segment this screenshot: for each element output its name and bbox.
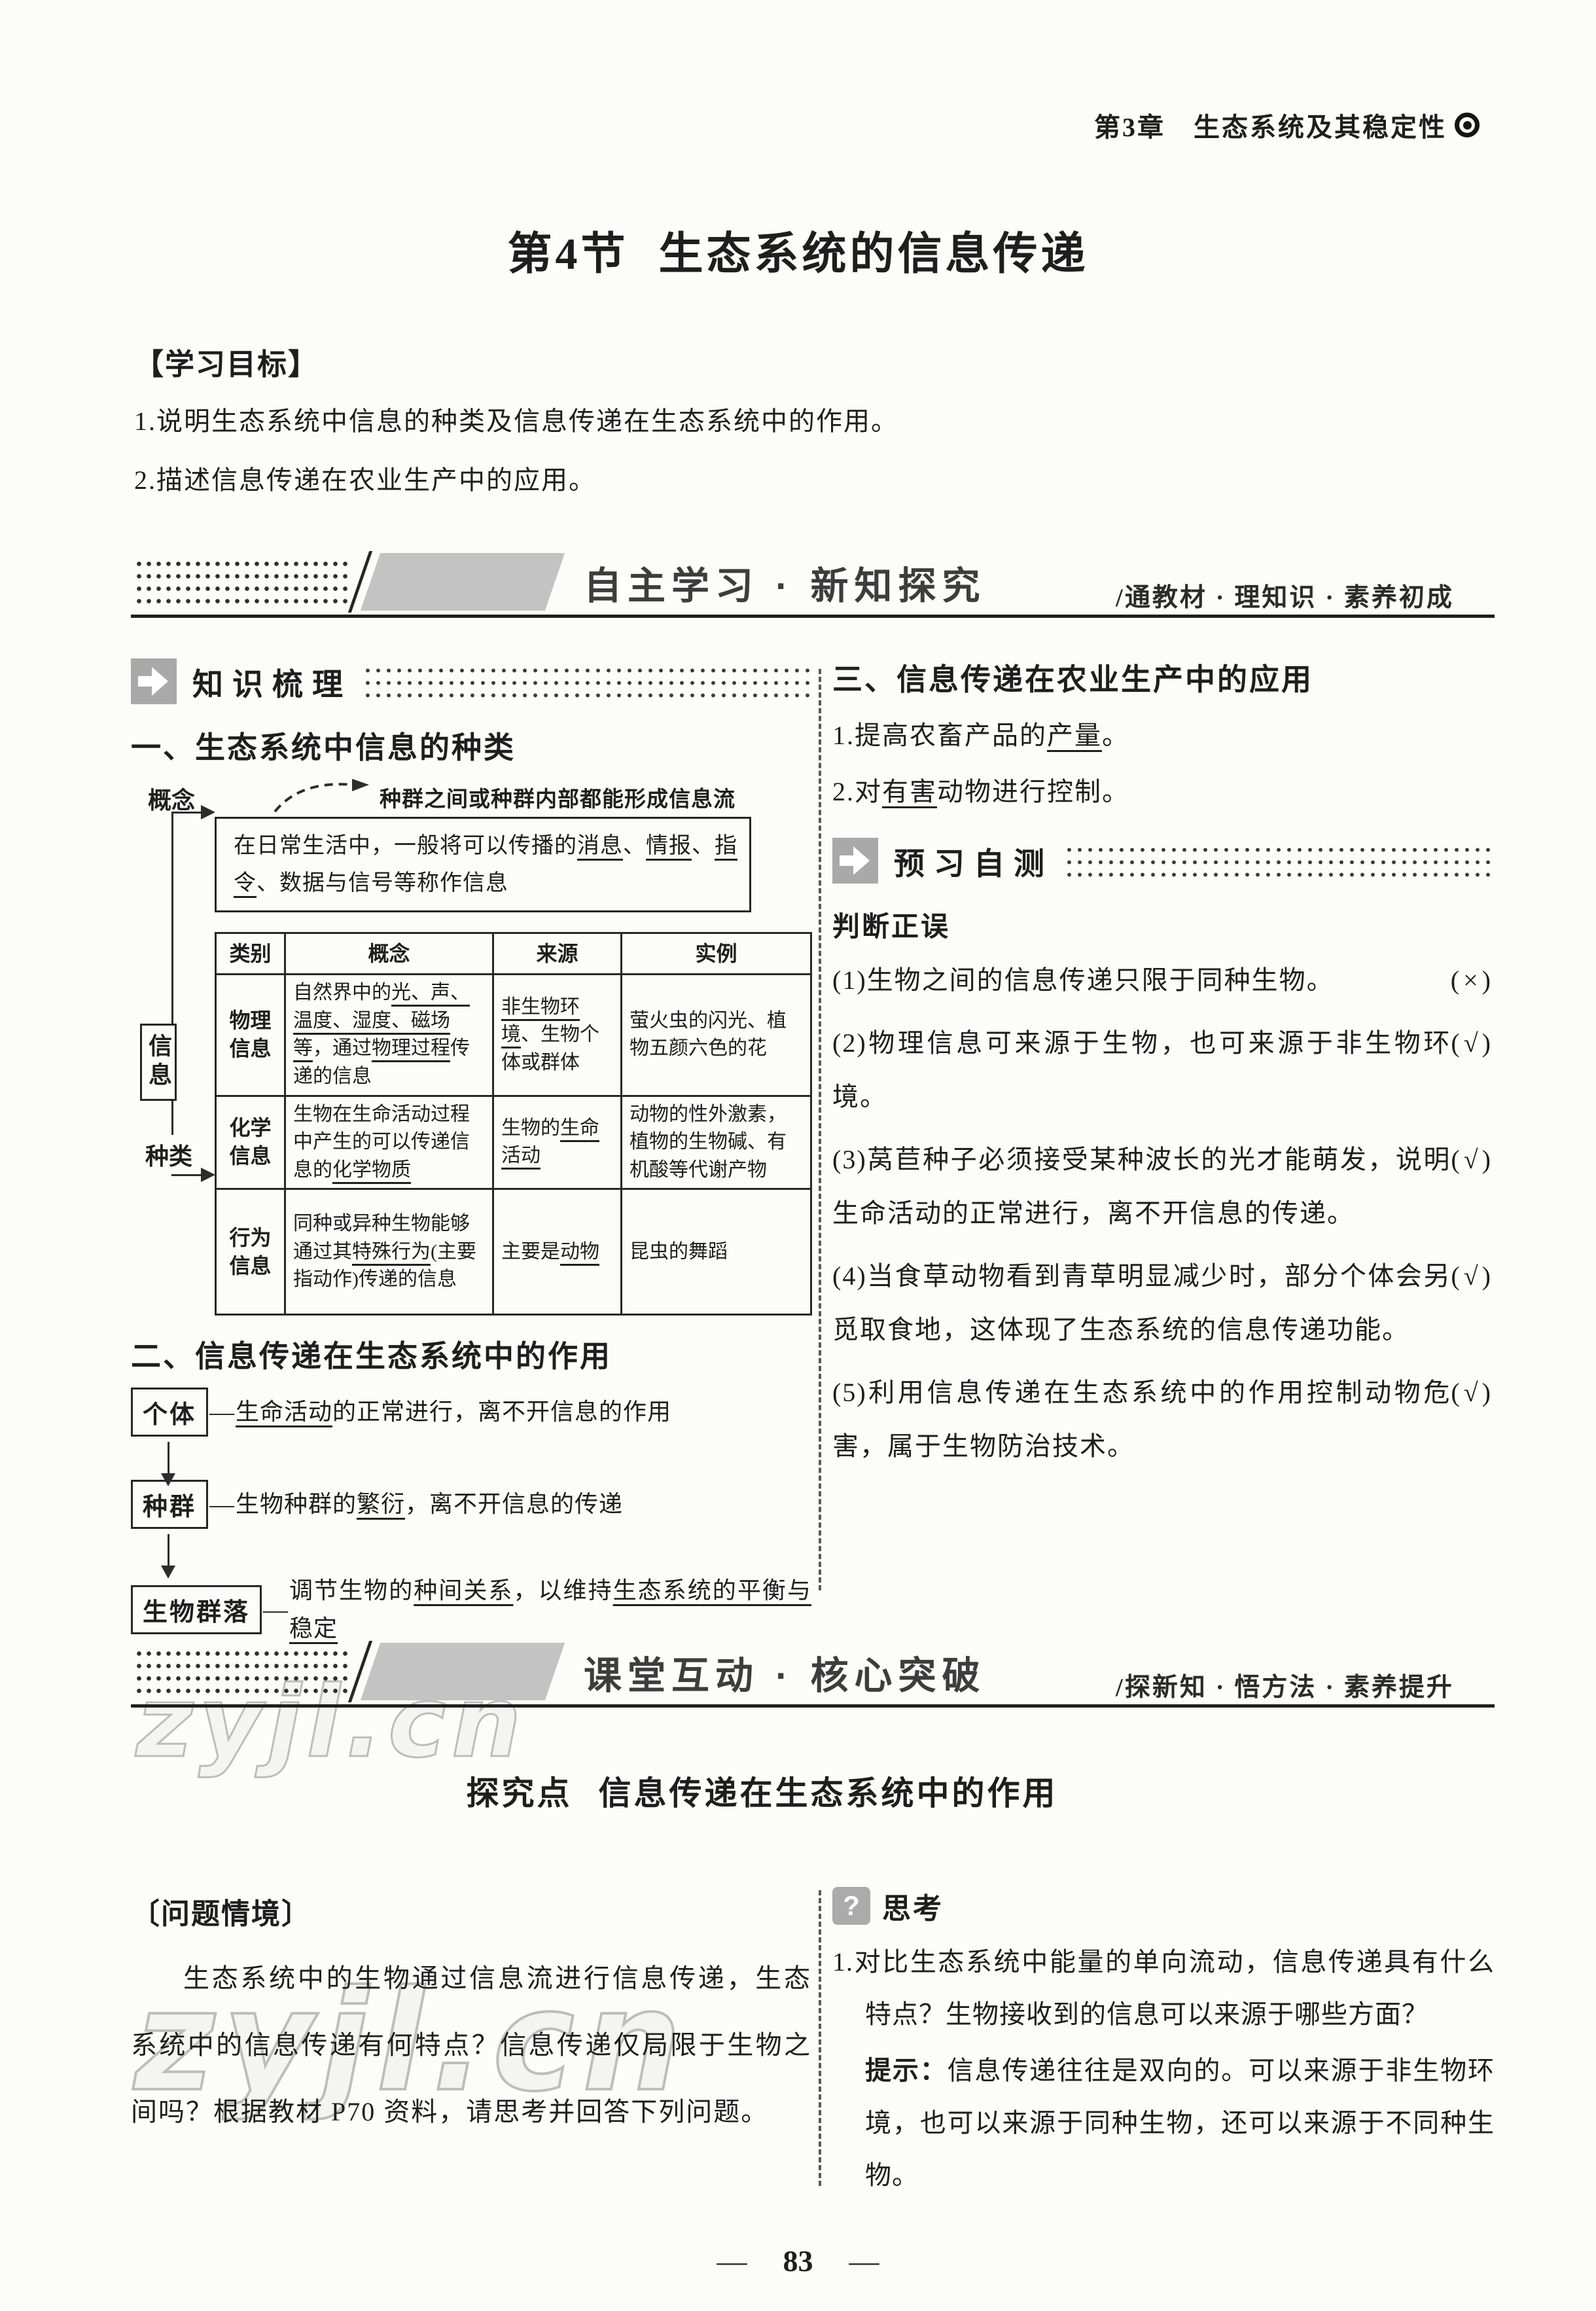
cell-concept: 生物在生命活动过程中产生的可以传递信息的化学物质 [285, 1096, 493, 1189]
think-body: 1.对比生态系统中能量的单向流动，信息传递具有什么特点？生物接收到的信息可以来源… [832, 1936, 1495, 2202]
column-header: 来源 [493, 933, 622, 975]
banner-subtitle: /通教材 · 理知识 · 素养初成 [1116, 577, 1454, 614]
dashed-arrow-icon [271, 778, 370, 814]
judgment-item: (√) (5)利用信息传递在生态系统中的作用控制动物危害，属于生物防治技术。 [832, 1366, 1495, 1473]
section-heading-1: 一、生态系统中信息的种类 [131, 724, 811, 767]
branch-line [171, 812, 173, 1175]
chapter-heading: 第3章 生态系统及其稳定性 [1094, 106, 1480, 144]
hint-paragraph: 提示：信息传递往往是双向的。可以来源于非生物环境，也可以来源于同种生物，还可以来… [865, 2045, 1495, 2202]
application-item: 1.提高农畜产品的产量。 [832, 716, 1495, 755]
banner-classroom: 课堂互动 · 核心突破 /探新知 · 悟方法 · 素养提升 [0, 1639, 1596, 1708]
banner-parallelogram [361, 1643, 565, 1700]
explore-point-heading: 探究点信息传递在生态系统中的作用 [0, 1767, 1560, 1814]
info-role-flowchart: 个体 — 生命活动的正常进行，离不开信息的作用 种群 — 生物种群的繁衍，离不开… [131, 1388, 811, 1647]
banner-parallelogram [361, 553, 565, 611]
flow-desc: 生命活动的正常进行，离不开信息的作用 [236, 1393, 671, 1431]
column-header: 实例 [622, 933, 811, 975]
column-header: 概念 [285, 933, 493, 975]
judgment-text: (3)莴苣种子必须接受某种波长的光才能萌发，说明生命活动的正常进行，离不开信息的… [832, 1145, 1451, 1228]
judgment-answer: (√) [1451, 1016, 1495, 1070]
flow-desc: 生物种群的繁衍，离不开信息的传递 [236, 1486, 623, 1524]
hint-text: 信息传递往往是双向的。可以来源于非生物环境，也可以来源于同种生物，还可以来源于不… [865, 2056, 1495, 2190]
right-column: 三、信息传递在农业生产中的应用 1.提高农畜产品的产量。 2.对有害动物进行控制… [832, 656, 1495, 1473]
page-number-dash: — [717, 2244, 747, 2278]
table-row: 化学信息 生物在生命活动过程中产生的可以传递信息的化学物质 生物的生命活动 动物… [216, 1096, 811, 1189]
column-divider [819, 1890, 821, 2186]
dotted-fill [363, 662, 811, 700]
banner-underline [131, 1704, 1495, 1708]
branch-arrow-types [171, 1174, 202, 1176]
cell-type: 行为信息 [216, 1189, 285, 1315]
concept-box: 在日常生活中，一般将可以传播的消息、情报、指令、数据与信号等称作信息 [215, 817, 751, 912]
cell-example: 昆虫的舞蹈 [622, 1189, 811, 1315]
table-header-row: 类别 概念 来源 实例 [216, 933, 811, 975]
knowledge-tag-label: 知识梳理 [192, 659, 352, 704]
column-divider [819, 669, 821, 1590]
table-row: 物理信息 自然界中的光、声、温度、湿度、磁场等，通过物理过程传递的信息 非生物环… [216, 975, 811, 1096]
dotted-fill [1064, 842, 1495, 880]
banner-self-study: 自主学习 · 新知探究 /通教材 · 理知识 · 素养初成 [0, 550, 1596, 618]
goal-item: 2.描述信息传递在农业生产中的应用。 [134, 460, 1430, 501]
chapter-title: 第3章 生态系统及其稳定性 [1094, 106, 1447, 144]
info-node-box: 信息 [140, 1024, 177, 1101]
chapter-bullet-dot [1463, 121, 1472, 130]
judgment-text: (2)物理信息可来源于生物，也可来源于非生物环境。 [832, 1028, 1451, 1111]
judgment-answer: (√) [1451, 1366, 1495, 1420]
think-question: 1.对比生态系统中能量的单向流动，信息传递具有什么特点？生物接收到的信息可以来源… [865, 1936, 1495, 2041]
arrow-right-icon [131, 658, 177, 704]
judgment-item: (√) (4)当食草动物看到青草明显减少时，部分个体会另觅取食地，这体现了生态系… [832, 1249, 1495, 1357]
explore-point-title: 信息传递在生态系统中的作用 [599, 1775, 1058, 1812]
cell-source: 非生物环境、生物个体或群体 [493, 975, 622, 1096]
think-section: ? 思考 1.对比生态系统中能量的单向流动，信息传递具有什么特点？生物接收到的信… [832, 1885, 1495, 2202]
arrow-right-icon [832, 838, 878, 884]
flow-connector-dash: — [263, 1596, 288, 1624]
flow-row-community: 生物群落 — 调节生物的种间关系，以维持生态系统的平衡与稳定 [131, 1572, 811, 1647]
flow-box-population: 种群 [131, 1480, 208, 1529]
judgment-item: (√) (3)莴苣种子必须接受某种波长的光才能萌发，说明生命活动的正常进行，离不… [832, 1133, 1495, 1240]
cell-source: 主要是动物 [493, 1189, 622, 1315]
pretest-tag: 预习自测 [832, 835, 1495, 886]
think-header: ? 思考 [832, 1885, 1495, 1927]
hint-label: 提示： [865, 2056, 948, 2085]
flow-row-individual: 个体 — 生命活动的正常进行，离不开信息的作用 [131, 1388, 811, 1437]
judgment-text: (4)当食草动物看到青草明显减少时，部分个体会另觅取食地，这体现了生态系统的信息… [832, 1261, 1451, 1344]
flow-box-individual: 个体 [131, 1388, 208, 1437]
judgment-text: (5)利用信息传递在生态系统中的作用控制动物危害，属于生物防治技术。 [832, 1378, 1451, 1461]
cell-type: 化学信息 [216, 1096, 285, 1189]
situation-paragraph: 生态系统中的生物通过信息流进行信息传递，生态系统中的信息传递有何特点？信息传递仅… [131, 1945, 811, 2145]
learning-goals-heading: 【学习目标】 [134, 340, 1430, 383]
flow-box-community: 生物群落 [131, 1585, 262, 1634]
page-number-dash: — [849, 2244, 879, 2278]
judgment-answer: (√) [1451, 1249, 1495, 1303]
learning-goals: 【学习目标】 1.说明生态系统中信息的种类及信息传递在生态系统中的作用。 2.描… [134, 340, 1430, 501]
cell-concept: 同种或异种生物能够通过其特殊行为(主要指动作)传递的信息 [285, 1189, 493, 1315]
think-label: 思考 [882, 1885, 944, 1927]
page-title-number: 第4节 [507, 229, 628, 279]
down-arrow-icon [168, 1534, 169, 1567]
page-title-text: 生态系统的信息传递 [659, 229, 1089, 279]
page-number: —83— [0, 2244, 1596, 2278]
problem-situation: 〔问题情境〕 生态系统中的生物通过信息流进行信息传递，生态系统中的信息传递有何特… [131, 1890, 811, 2145]
banner-title: 课堂互动 · 核心突破 [584, 1645, 986, 1700]
banner-dots-decoration [134, 1647, 350, 1698]
table-row: 行为信息 同种或异种生物能够通过其特殊行为(主要指动作)传递的信息 主要是动物 … [216, 1189, 811, 1315]
pretest-tag-label: 预习自测 [894, 838, 1054, 884]
down-arrow-icon [168, 1442, 169, 1475]
info-types-table: 类别 概念 来源 实例 物理信息 自然界中的光、声、温度、湿度、磁场等，通过物理… [215, 932, 812, 1316]
cell-type: 物理信息 [216, 975, 285, 1096]
judgment-text: (1)生物之间的信息传递只限于同种生物。 [832, 965, 1334, 995]
flow-connector-dash: — [209, 1490, 234, 1519]
judgment-item: (×) (1)生物之间的信息传递只限于同种生物。 [832, 954, 1495, 1007]
textbook-page: 第3章 生态系统及其稳定性 第4节生态系统的信息传递 【学习目标】 1.说明生态… [0, 0, 1596, 2311]
judgment-answer: (√) [1451, 1133, 1495, 1187]
banner-subtitle: /探新知 · 悟方法 · 素养提升 [1116, 1667, 1454, 1704]
question-icon: ? [832, 1887, 870, 1925]
banner-underline [131, 615, 1495, 618]
knowledge-tag: 知识梳理 [131, 656, 811, 707]
judge-subheading: 判断正误 [832, 905, 1495, 944]
judgment-answer: (×) [1451, 954, 1495, 1007]
flow-row-population: 种群 — 生物种群的繁衍，离不开信息的传递 [131, 1480, 811, 1529]
page-title: 第4节生态系统的信息传递 [0, 217, 1596, 282]
section-heading-2: 二、信息传递在生态系统中的作用 [131, 1333, 811, 1376]
banner-title: 自主学习 · 新知探究 [584, 555, 986, 610]
info-annotation: 种群之间或种群内部都能形成信息流 [271, 776, 811, 814]
concept-branch-label: 概念 [148, 781, 195, 815]
explore-point-label: 探究点 [467, 1775, 573, 1812]
goal-item: 1.说明生态系统中信息的种类及信息传递在生态系统中的作用。 [134, 401, 1430, 442]
cell-source: 生物的生命活动 [493, 1096, 622, 1189]
flow-connector-dash: — [209, 1398, 234, 1427]
information-concept-map: 种群之间或种群内部都能形成信息流 概念 在日常生活中，一般将可以传播的消息、情报… [131, 776, 811, 1316]
chapter-bullet-icon [1455, 113, 1480, 137]
page-number-value: 83 [783, 2244, 813, 2278]
flow-desc: 调节生物的种间关系，以维持生态系统的平衡与稳定 [289, 1572, 811, 1647]
column-header: 类别 [216, 933, 285, 975]
type-branch-label: 种类 [145, 1135, 192, 1174]
section-heading-3: 三、信息传递在农业生产中的应用 [832, 656, 1495, 699]
left-column: 知识梳理 一、生态系统中信息的种类 种群之间或种群内部都能形成信息流 概念 在日… [131, 656, 811, 1648]
cell-example: 动物的性外激素，植物的生物碱、有机酸等代谢产物 [622, 1096, 811, 1189]
cell-example: 萤火虫的闪光、植物五颜六色的花 [622, 975, 811, 1096]
situation-label: 〔问题情境〕 [131, 1890, 811, 1932]
cell-concept: 自然界中的光、声、温度、湿度、磁场等，通过物理过程传递的信息 [285, 975, 493, 1096]
judgment-item: (√) (2)物理信息可来源于生物，也可来源于非生物环境。 [832, 1016, 1495, 1124]
info-annotation-text: 种群之间或种群内部都能形成信息流 [380, 781, 736, 813]
application-item: 2.对有害动物进行控制。 [832, 772, 1495, 812]
banner-dots-decoration [134, 558, 350, 609]
